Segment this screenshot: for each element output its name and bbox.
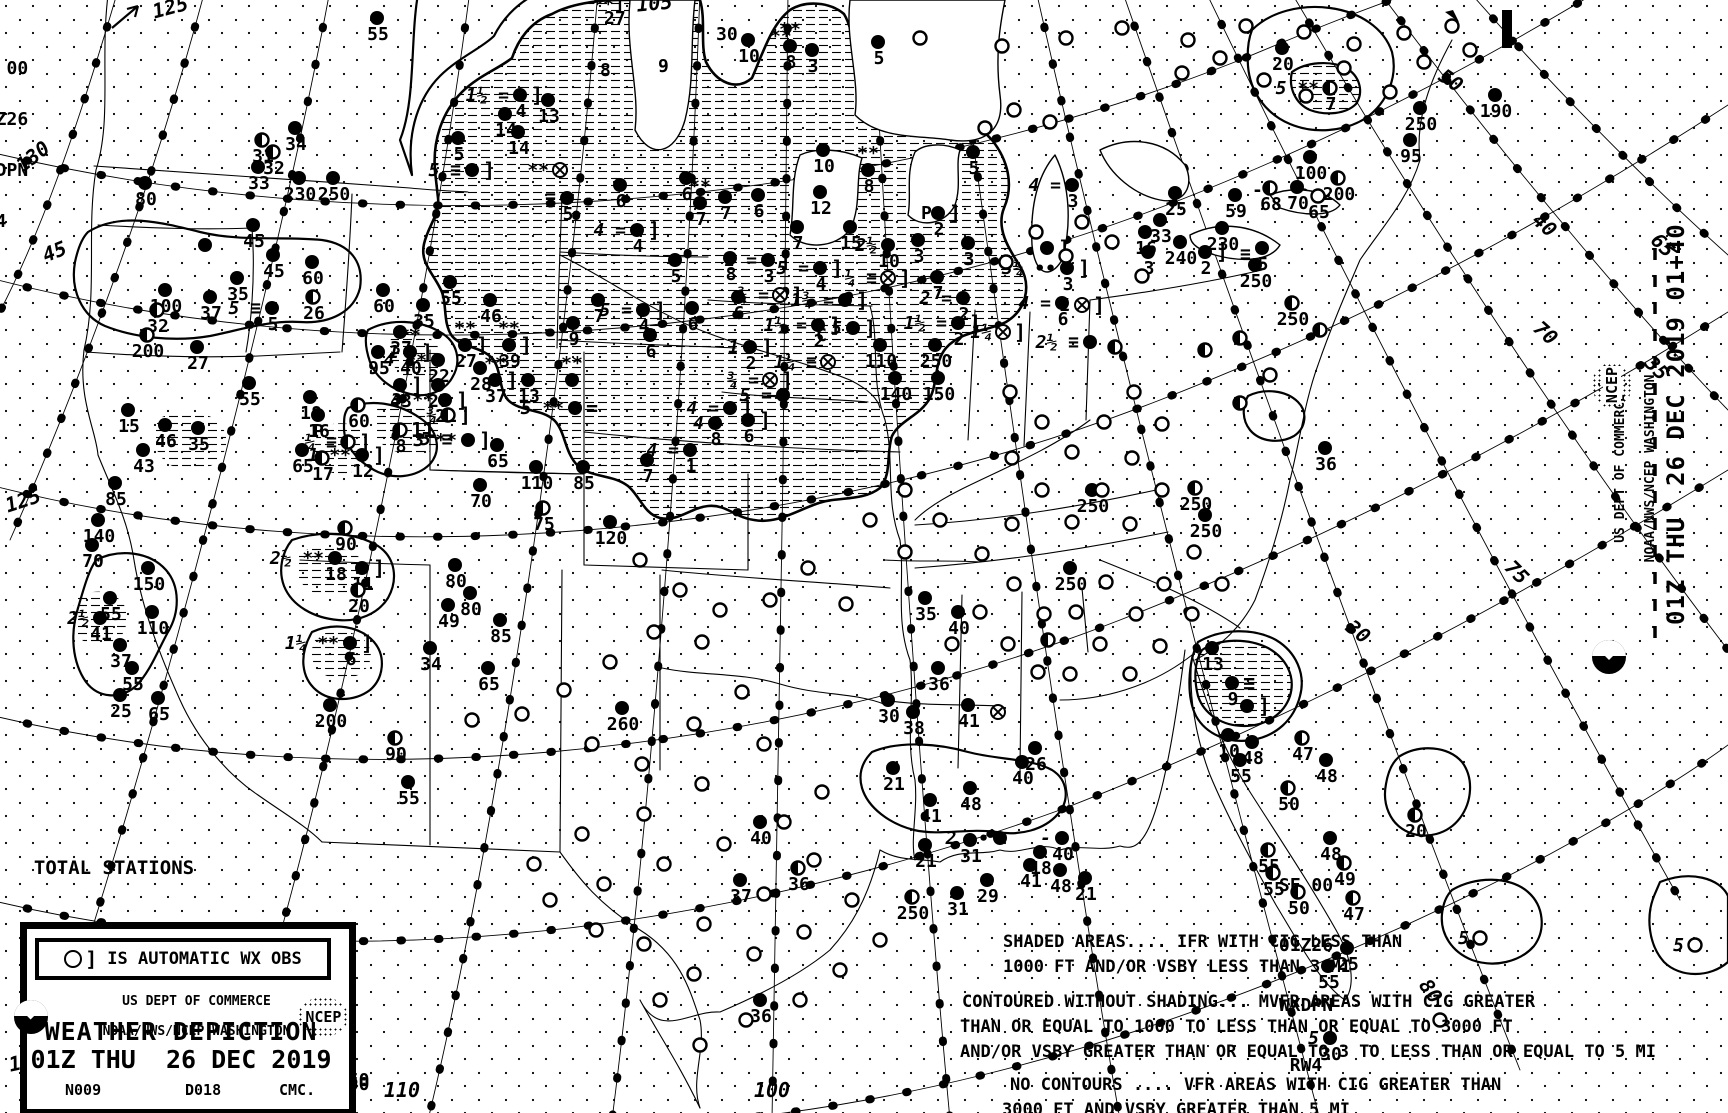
svg-text:65: 65 xyxy=(1308,202,1330,223)
station-plot xyxy=(1136,270,1149,283)
station-plot xyxy=(1130,608,1143,621)
stats-line: TOTAL STATIONS xyxy=(4,850,224,886)
station-plot xyxy=(598,878,611,891)
svg-text:90: 90 xyxy=(335,534,357,555)
svg-text:]: ] xyxy=(1014,320,1026,344)
station-plot xyxy=(688,718,701,731)
footer-cmc: CMC. xyxy=(279,1081,315,1099)
svg-text:1: 1 xyxy=(388,342,399,363)
station-plot xyxy=(1076,216,1089,229)
svg-text:10: 10 xyxy=(813,156,835,177)
svg-text:80: 80 xyxy=(135,189,157,210)
chart-title: WEATHER DEPICTION xyxy=(27,1017,335,1046)
svg-text:3: 3 xyxy=(764,266,775,287)
key-line: CONTOURED WITHOUT SHADING... MVFR AREAS … xyxy=(962,990,1535,1015)
station-plot xyxy=(654,994,667,1007)
svg-text:3: 3 xyxy=(1068,191,1079,212)
station-plot xyxy=(544,894,557,907)
station-plot: 6 xyxy=(613,178,627,212)
station-plot xyxy=(1384,86,1397,99)
svg-text:**: ** xyxy=(561,353,583,374)
station-plot: 7 xyxy=(790,220,804,254)
svg-text:]: ] xyxy=(421,340,433,364)
station-plot xyxy=(1038,608,1051,621)
svg-text:4: 4 xyxy=(693,413,704,434)
svg-text:35: 35 xyxy=(227,284,249,305)
svg-text:20: 20 xyxy=(1272,54,1294,75)
svg-text:41: 41 xyxy=(90,624,112,645)
svg-text:5: 5 xyxy=(563,204,574,225)
v-dept-line2: NOAA/NWS/NCEP WASHINGTON xyxy=(1643,375,1658,563)
svg-text:1¼: 1¼ xyxy=(970,322,992,343)
svg-text:5 =: 5 = xyxy=(776,258,809,279)
svg-text:8: 8 xyxy=(396,436,407,457)
svg-text:68: 68 xyxy=(1260,194,1282,215)
station-plot xyxy=(1176,67,1189,80)
station-plot: 7 xyxy=(640,453,654,487)
svg-text:2 ••: 2 •• xyxy=(945,828,989,849)
station-plot xyxy=(590,924,603,937)
station-plot xyxy=(638,938,651,951)
map-free-label: 5 ≡ xyxy=(420,429,453,450)
station-plot xyxy=(816,786,829,799)
svg-text:36: 36 xyxy=(1315,454,1337,475)
svg-text:40: 40 xyxy=(948,618,970,639)
svg-text:**: ** xyxy=(484,353,506,374)
station-plot: 1¾ =] xyxy=(791,288,868,312)
station-plot xyxy=(1234,397,1247,410)
station-plot xyxy=(1116,22,1129,35)
key-line: NO CONTOURS .... VFR AREAS WITH CIG GREA… xyxy=(1010,1073,1501,1098)
svg-text:21: 21 xyxy=(1075,884,1097,905)
svg-text:1½ =: 1½ = xyxy=(466,85,510,106)
station-plot xyxy=(1066,516,1079,529)
station-plot xyxy=(1006,452,1019,465)
svg-text:5: 5 xyxy=(969,158,980,179)
svg-text:12: 12 xyxy=(810,198,832,219)
svg-text:1¼ **: 1¼ ** xyxy=(285,633,339,654)
svg-text:]: ] xyxy=(459,403,471,427)
svg-text:]: ] xyxy=(899,266,911,290)
station-plot xyxy=(1156,484,1169,497)
station-plot xyxy=(1060,32,1073,45)
bracket-icon: ] xyxy=(85,947,97,971)
svg-text:1½ =: 1½ = xyxy=(904,313,948,334)
svg-text:48: 48 xyxy=(1050,876,1072,897)
svg-text:95: 95 xyxy=(1400,146,1422,167)
svg-text:1¾ =: 1¾ = xyxy=(791,290,835,311)
svg-text:37: 37 xyxy=(485,386,507,407)
svg-text:7: 7 xyxy=(696,209,707,230)
station-plot xyxy=(1042,634,1055,647)
svg-text:47: 47 xyxy=(1343,904,1365,925)
station-plot xyxy=(1128,386,1141,399)
station-plot xyxy=(1126,452,1139,465)
station-plot xyxy=(1008,104,1021,117)
map-free-label: P xyxy=(921,203,932,224)
svg-text:47: 47 xyxy=(1292,744,1314,765)
svg-text:48: 48 xyxy=(960,794,982,815)
svg-text:]: ] xyxy=(531,83,543,107)
station-plot: 5 xyxy=(1255,241,1269,275)
station-plot xyxy=(698,918,711,931)
station-plot xyxy=(1338,62,1351,75)
svg-text:¼ ≡: ¼ ≡ xyxy=(844,268,877,289)
station-plot xyxy=(1124,668,1137,681)
svg-text:]: ] xyxy=(479,428,491,452)
station-plot xyxy=(1070,606,1083,619)
svg-text:26: 26 xyxy=(303,303,325,324)
station-plot xyxy=(1300,90,1313,103)
svg-text:5: 5 xyxy=(268,314,279,335)
svg-text:33: 33 xyxy=(248,173,270,194)
svg-text:110: 110 xyxy=(137,618,170,639)
svg-text:41: 41 xyxy=(920,806,942,827)
svg-text:36: 36 xyxy=(928,674,950,695)
station-plot xyxy=(638,808,651,821)
station-plot xyxy=(748,948,761,961)
svg-text:46: 46 xyxy=(480,306,502,327)
station-plot xyxy=(1002,638,1015,651)
svg-text:2½ ≡: 2½ ≡ xyxy=(1035,332,1080,353)
svg-text:36: 36 xyxy=(788,874,810,895)
svg-text:27: 27 xyxy=(455,351,477,372)
station-plot xyxy=(834,964,847,977)
station-plot xyxy=(1314,324,1327,337)
station-plot: 5 xyxy=(966,145,980,179)
id-line: RW4 xyxy=(0,213,28,230)
station-plot xyxy=(1446,20,1459,33)
station-plot: ** xyxy=(527,160,567,181)
svg-text:2: 2 xyxy=(954,329,965,350)
svg-text:]: ] xyxy=(864,316,876,340)
svg-text:70: 70 xyxy=(470,491,492,512)
map-free-label: 9 xyxy=(658,56,669,77)
svg-text:7: 7 xyxy=(1326,94,1337,115)
station-plot xyxy=(1004,386,1017,399)
svg-text:]: ] xyxy=(856,288,868,312)
v-dept-line1: US DEPT OF COMMERCE xyxy=(1613,394,1628,543)
svg-text:200: 200 xyxy=(132,341,165,362)
svg-text:]: ] xyxy=(1093,293,1105,317)
svg-text:34: 34 xyxy=(285,134,307,155)
svg-text:55: 55 xyxy=(367,24,389,45)
svg-text:7: 7 xyxy=(721,203,732,224)
svg-text:3: 3 xyxy=(964,249,975,270)
svg-text:9: 9 xyxy=(569,329,580,350)
svg-text:2½ **: 2½ ** xyxy=(269,548,324,569)
station-plot xyxy=(1464,44,1477,57)
svg-text:2: 2 xyxy=(934,219,945,240)
svg-text:80: 80 xyxy=(445,571,467,592)
svg-text:13: 13 xyxy=(1202,654,1224,675)
station-plot xyxy=(586,738,599,751)
svg-text:35: 35 xyxy=(915,604,937,625)
legend-box: ] IS AUTOMATIC WX OBS US DEPT OF COMMERC… xyxy=(20,922,356,1113)
svg-text:21: 21 xyxy=(915,851,937,872)
svg-text:150: 150 xyxy=(923,384,956,405)
svg-text:**: ** xyxy=(399,325,421,346)
station-plot xyxy=(696,636,709,649)
svg-text:85: 85 xyxy=(573,473,595,494)
svg-text:65: 65 xyxy=(148,704,170,725)
station-plot xyxy=(198,238,212,252)
station-plot xyxy=(1032,666,1045,679)
svg-text:90: 90 xyxy=(385,744,407,765)
svg-text:70: 70 xyxy=(1287,193,1309,214)
svg-text:]: ] xyxy=(949,201,961,225)
station-plot xyxy=(528,858,541,871)
svg-text:]: ] xyxy=(1258,694,1270,718)
svg-text:2½: 2½ xyxy=(854,235,877,256)
key-line: 3000 FT AND VSBY GREATER THAN 5 MI xyxy=(1002,1098,1350,1113)
station-plot xyxy=(636,758,649,771)
svg-text:1½ =: 1½ = xyxy=(764,315,808,336)
svg-text:55: 55 xyxy=(1230,766,1252,787)
svg-text:190: 190 xyxy=(1480,101,1513,122)
svg-text:=: = xyxy=(586,396,598,420)
svg-text:40: 40 xyxy=(750,828,772,849)
svg-text:6: 6 xyxy=(346,649,357,670)
svg-text:200: 200 xyxy=(315,711,348,732)
key-line: AND/OR VSBY GREATER THAN OR EQUAL TO 3 T… xyxy=(960,1040,1656,1065)
station-plot xyxy=(914,32,927,45)
svg-text:150: 150 xyxy=(133,574,166,595)
station-plot xyxy=(1418,56,1431,69)
svg-text:6: 6 xyxy=(754,201,765,222)
svg-text:80: 80 xyxy=(460,599,482,620)
svg-text:59: 59 xyxy=(1225,201,1247,222)
svg-text:18: 18 xyxy=(325,564,347,585)
station-plot: 3 xyxy=(911,233,925,267)
svg-text:6: 6 xyxy=(744,426,755,447)
svg-text:3: 3 xyxy=(1063,274,1074,295)
svg-text:1: 1 xyxy=(1060,295,1071,316)
svg-text:1: 1 xyxy=(728,337,739,358)
svg-text:6: 6 xyxy=(688,314,699,335)
footer-d018: D018 xyxy=(185,1081,221,1099)
map-free-label: 8 xyxy=(600,60,611,81)
station-plot xyxy=(1036,484,1049,497)
station-plot xyxy=(1006,518,1019,531)
station-plot xyxy=(740,1014,753,1027)
key-line: 1000 FT AND/OR VSBY LESS THAN 3 MI xyxy=(1003,955,1351,980)
station-plot xyxy=(604,656,617,669)
svg-text:6: 6 xyxy=(616,191,627,212)
station-plot xyxy=(1234,332,1247,345)
station-plot xyxy=(794,994,807,1007)
station-plot: 6 xyxy=(731,290,745,324)
station-plot xyxy=(1106,236,1119,249)
map-free-label: 27 xyxy=(604,8,626,29)
map-free-label: ** xyxy=(770,26,792,47)
svg-text:37: 37 xyxy=(200,303,222,324)
svg-text:10: 10 xyxy=(878,251,900,272)
station-plot: 6 xyxy=(685,301,699,335)
svg-text:]: ] xyxy=(1078,256,1090,280)
map-free-label: P xyxy=(313,421,324,442)
svg-text:3: 3 xyxy=(808,56,819,77)
map-free-label: - xyxy=(1252,180,1263,201)
svg-text:60: 60 xyxy=(348,411,370,432)
svg-text:3: 3 xyxy=(914,246,925,267)
auto-obs-label: IS AUTOMATIC WX OBS xyxy=(107,949,301,969)
svg-text:48: 48 xyxy=(1316,766,1338,787)
svg-text:4: 4 xyxy=(633,236,644,257)
station-plot xyxy=(934,514,947,527)
map-free-label: C xyxy=(816,325,827,346)
station-plot xyxy=(1188,546,1201,559)
station-plot xyxy=(558,684,571,697)
station-plot: 6 xyxy=(751,188,765,222)
svg-text:]: ] xyxy=(761,335,773,359)
station-plot xyxy=(846,894,859,907)
svg-text:]: ] xyxy=(1216,240,1228,264)
station-plot xyxy=(991,705,1005,719)
svg-text:]: ] xyxy=(483,158,495,182)
station-plot: 3 xyxy=(805,43,819,77)
svg-text:70: 70 xyxy=(82,551,104,572)
svg-text:240: 240 xyxy=(1165,248,1198,269)
svg-text:2½: 2½ xyxy=(66,608,89,629)
station-plot xyxy=(658,858,671,871)
svg-text:4 =: 4 = xyxy=(593,220,626,241)
svg-text:6: 6 xyxy=(646,341,657,362)
key-line: THAN OR EQUAL TO 1000 TO LESS THAN OR EQ… xyxy=(960,1015,1513,1040)
key-line: SHADED AREAS.... IFR WITH CIG LESS THAN xyxy=(1003,930,1402,955)
svg-text:≡: ≡ xyxy=(545,188,556,209)
station-plot xyxy=(974,606,987,619)
id-line: SF 00 xyxy=(1268,876,1344,896)
svg-text:95: 95 xyxy=(368,358,390,379)
svg-text:20: 20 xyxy=(1405,821,1427,842)
station-plot xyxy=(808,854,821,867)
station-plot xyxy=(714,604,727,617)
station-plot xyxy=(688,968,701,981)
id-line: SF 00 xyxy=(0,60,28,77)
svg-text:250: 250 xyxy=(897,903,930,924)
svg-text:4: 4 xyxy=(516,101,527,122)
svg-text:36: 36 xyxy=(750,1006,772,1027)
station-plot xyxy=(1008,578,1021,591)
svg-text:4 =: 4 = xyxy=(1018,293,1051,314)
svg-text:12: 12 xyxy=(352,461,374,482)
svg-text:15: 15 xyxy=(118,416,140,437)
station-plot xyxy=(899,546,912,559)
footer-n009: N009 xyxy=(65,1081,101,1099)
station-plot xyxy=(979,122,992,135)
station-plot xyxy=(1098,416,1111,429)
station-plot xyxy=(576,828,589,841)
svg-text:**: ** xyxy=(689,176,711,197)
station-plot xyxy=(1258,74,1271,87)
svg-text:25: 25 xyxy=(110,701,132,722)
svg-text:]: ] xyxy=(654,298,666,322)
map-free-label: ≡ xyxy=(1240,244,1251,265)
svg-text:43: 43 xyxy=(133,456,155,477)
svg-text:37: 37 xyxy=(730,886,752,907)
station-plot xyxy=(1044,116,1057,129)
svg-text:]: ] xyxy=(373,443,385,467)
station-plot xyxy=(1240,20,1253,33)
svg-text:1: 1 xyxy=(686,456,697,477)
station-plot xyxy=(864,514,877,527)
station-plot xyxy=(736,686,749,699)
svg-text:41: 41 xyxy=(1020,871,1042,892)
graticule-label: 110 xyxy=(384,1078,420,1102)
station-plot xyxy=(1066,446,1079,459)
svg-text:60: 60 xyxy=(302,268,324,289)
svg-text:110: 110 xyxy=(521,473,554,494)
svg-text:55: 55 xyxy=(398,788,420,809)
svg-text:]: ] xyxy=(831,256,843,280)
svg-text:35: 35 xyxy=(188,434,210,455)
svg-text:1 =: 1 = xyxy=(724,250,757,271)
svg-text:50: 50 xyxy=(1278,794,1300,815)
svg-text:40: 40 xyxy=(400,358,422,379)
dept-line1: US DEPT OF COMMERCE xyxy=(122,994,271,1009)
svg-text:4 =: 4 = xyxy=(1028,175,1061,196)
svg-text:250: 250 xyxy=(1405,114,1438,135)
svg-text:7: 7 xyxy=(793,233,804,254)
svg-text:]: ] xyxy=(373,556,385,580)
svg-text:8: 8 xyxy=(786,52,797,73)
station-plot xyxy=(899,484,912,497)
svg-text:250: 250 xyxy=(318,184,351,205)
station-plot xyxy=(1158,578,1171,591)
svg-text:13: 13 xyxy=(538,106,560,127)
svg-text:120: 120 xyxy=(595,528,628,549)
svg-text:5 =: 5 = xyxy=(599,300,632,321)
svg-text:49: 49 xyxy=(438,611,460,632)
svg-text:55: 55 xyxy=(239,389,261,410)
chart-valid-time: 01Z THU 26 DEC 2019 xyxy=(27,1045,335,1074)
svg-text:14: 14 xyxy=(508,138,530,159)
svg-text:31: 31 xyxy=(960,846,982,867)
svg-text:250: 250 xyxy=(1077,496,1110,517)
station-plot xyxy=(718,838,731,851)
svg-text:40: 40 xyxy=(1052,844,1074,865)
noaa-logo-icon-right xyxy=(1592,640,1626,674)
station-plot xyxy=(1156,418,1169,431)
svg-text:65: 65 xyxy=(487,451,509,472)
station-plot xyxy=(1154,640,1167,653)
svg-text:75: 75 xyxy=(533,514,555,535)
map-free-label: 30 xyxy=(716,24,738,45)
svg-text:140: 140 xyxy=(880,384,913,405)
svg-text:260: 260 xyxy=(607,714,640,735)
svg-text:]: ] xyxy=(520,333,532,357)
svg-text:5: 5 xyxy=(1458,928,1469,949)
svg-text:55: 55 xyxy=(440,288,462,309)
station-plot xyxy=(1109,341,1122,354)
station-plot xyxy=(1000,256,1013,269)
svg-text:17: 17 xyxy=(312,464,334,485)
svg-text:2: 2 xyxy=(959,304,970,325)
station-plot xyxy=(976,548,989,561)
station-plot xyxy=(778,816,791,829)
svg-text:8: 8 xyxy=(864,176,875,197)
station-plot xyxy=(758,888,771,901)
svg-text:≡: ≡ xyxy=(1243,671,1255,695)
svg-text:85: 85 xyxy=(490,626,512,647)
station-plot: 3 xyxy=(961,236,975,270)
svg-text:9: 9 xyxy=(1228,689,1239,710)
svg-text:41: 41 xyxy=(958,711,980,732)
station-plot xyxy=(1398,27,1411,40)
top-right-index-bar xyxy=(1502,10,1512,48)
svg-text:2: 2 xyxy=(1201,258,1212,279)
